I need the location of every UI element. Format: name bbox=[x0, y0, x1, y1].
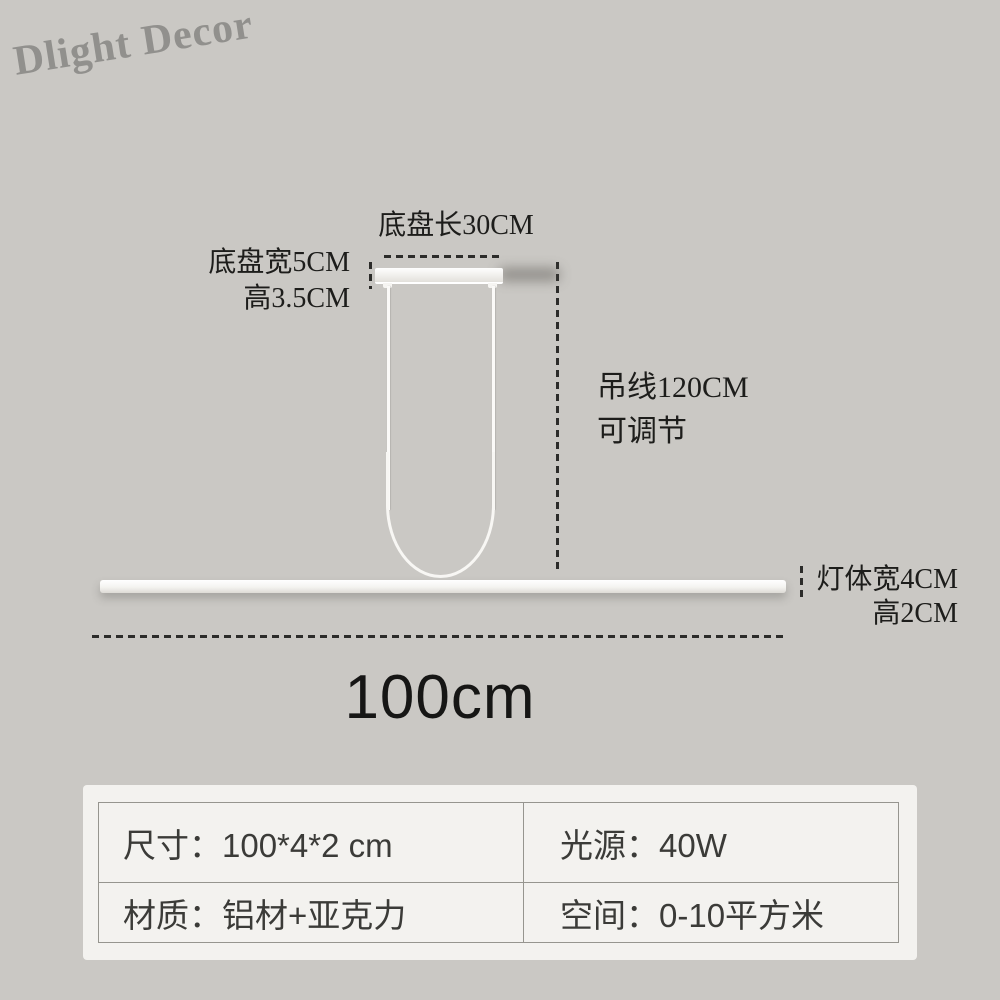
total-length-label: 100cm bbox=[305, 662, 575, 733]
wire-adjustable-note: 可调节 bbox=[597, 410, 749, 454]
total-length-dashed-line bbox=[92, 635, 788, 638]
spec-table-row: 材质：铝材+亚克力 空间：0-10平方米 bbox=[99, 883, 899, 943]
lamp-body-width-value: 灯体宽4CM bbox=[738, 563, 958, 597]
wire-length-label: 吊线120CM 可调节 bbox=[597, 366, 749, 454]
spec-card: 尺寸：100*4*2 cm 光源：40W 材质：铝材+亚克力 空间：0-10平方… bbox=[83, 785, 917, 960]
spec-cell-space: 空间：0-10平方米 bbox=[524, 883, 899, 943]
spec-cell-material: 材质：铝材+亚克力 bbox=[99, 883, 524, 943]
spec-table-row: 尺寸：100*4*2 cm 光源：40W bbox=[99, 803, 899, 883]
lamp-body-height-value: 高2CM bbox=[738, 597, 958, 631]
canopy-shadow bbox=[498, 268, 560, 281]
canopy-length-dashed-line bbox=[384, 255, 500, 258]
brand-watermark: Dlight Decor bbox=[10, 0, 256, 85]
linear-lamp-body bbox=[100, 580, 786, 593]
wire-length-dashed-line bbox=[556, 262, 559, 574]
wire-length-value: 吊线120CM bbox=[597, 366, 749, 410]
canopy-height-tick-line bbox=[369, 262, 372, 289]
product-diagram-image: Dlight Decor 底盘长30CM 底盘宽5CM 高3.5CM 吊线120… bbox=[0, 0, 1000, 1000]
lamp-body-size-label: 灯体宽4CM 高2CM bbox=[738, 563, 958, 631]
canopy-height-label: 高3.5CM bbox=[150, 282, 350, 316]
canopy-width-label: 底盘宽5CM bbox=[150, 246, 350, 280]
spec-cell-size: 尺寸：100*4*2 cm bbox=[99, 803, 524, 883]
spec-cell-light-source: 光源：40W bbox=[524, 803, 899, 883]
u-shaped-connector bbox=[386, 452, 495, 578]
canopy-length-label: 底盘长30CM bbox=[366, 209, 546, 243]
spec-table: 尺寸：100*4*2 cm 光源：40W 材质：铝材+亚克力 空间：0-10平方… bbox=[98, 802, 899, 943]
ceiling-canopy bbox=[375, 268, 503, 284]
